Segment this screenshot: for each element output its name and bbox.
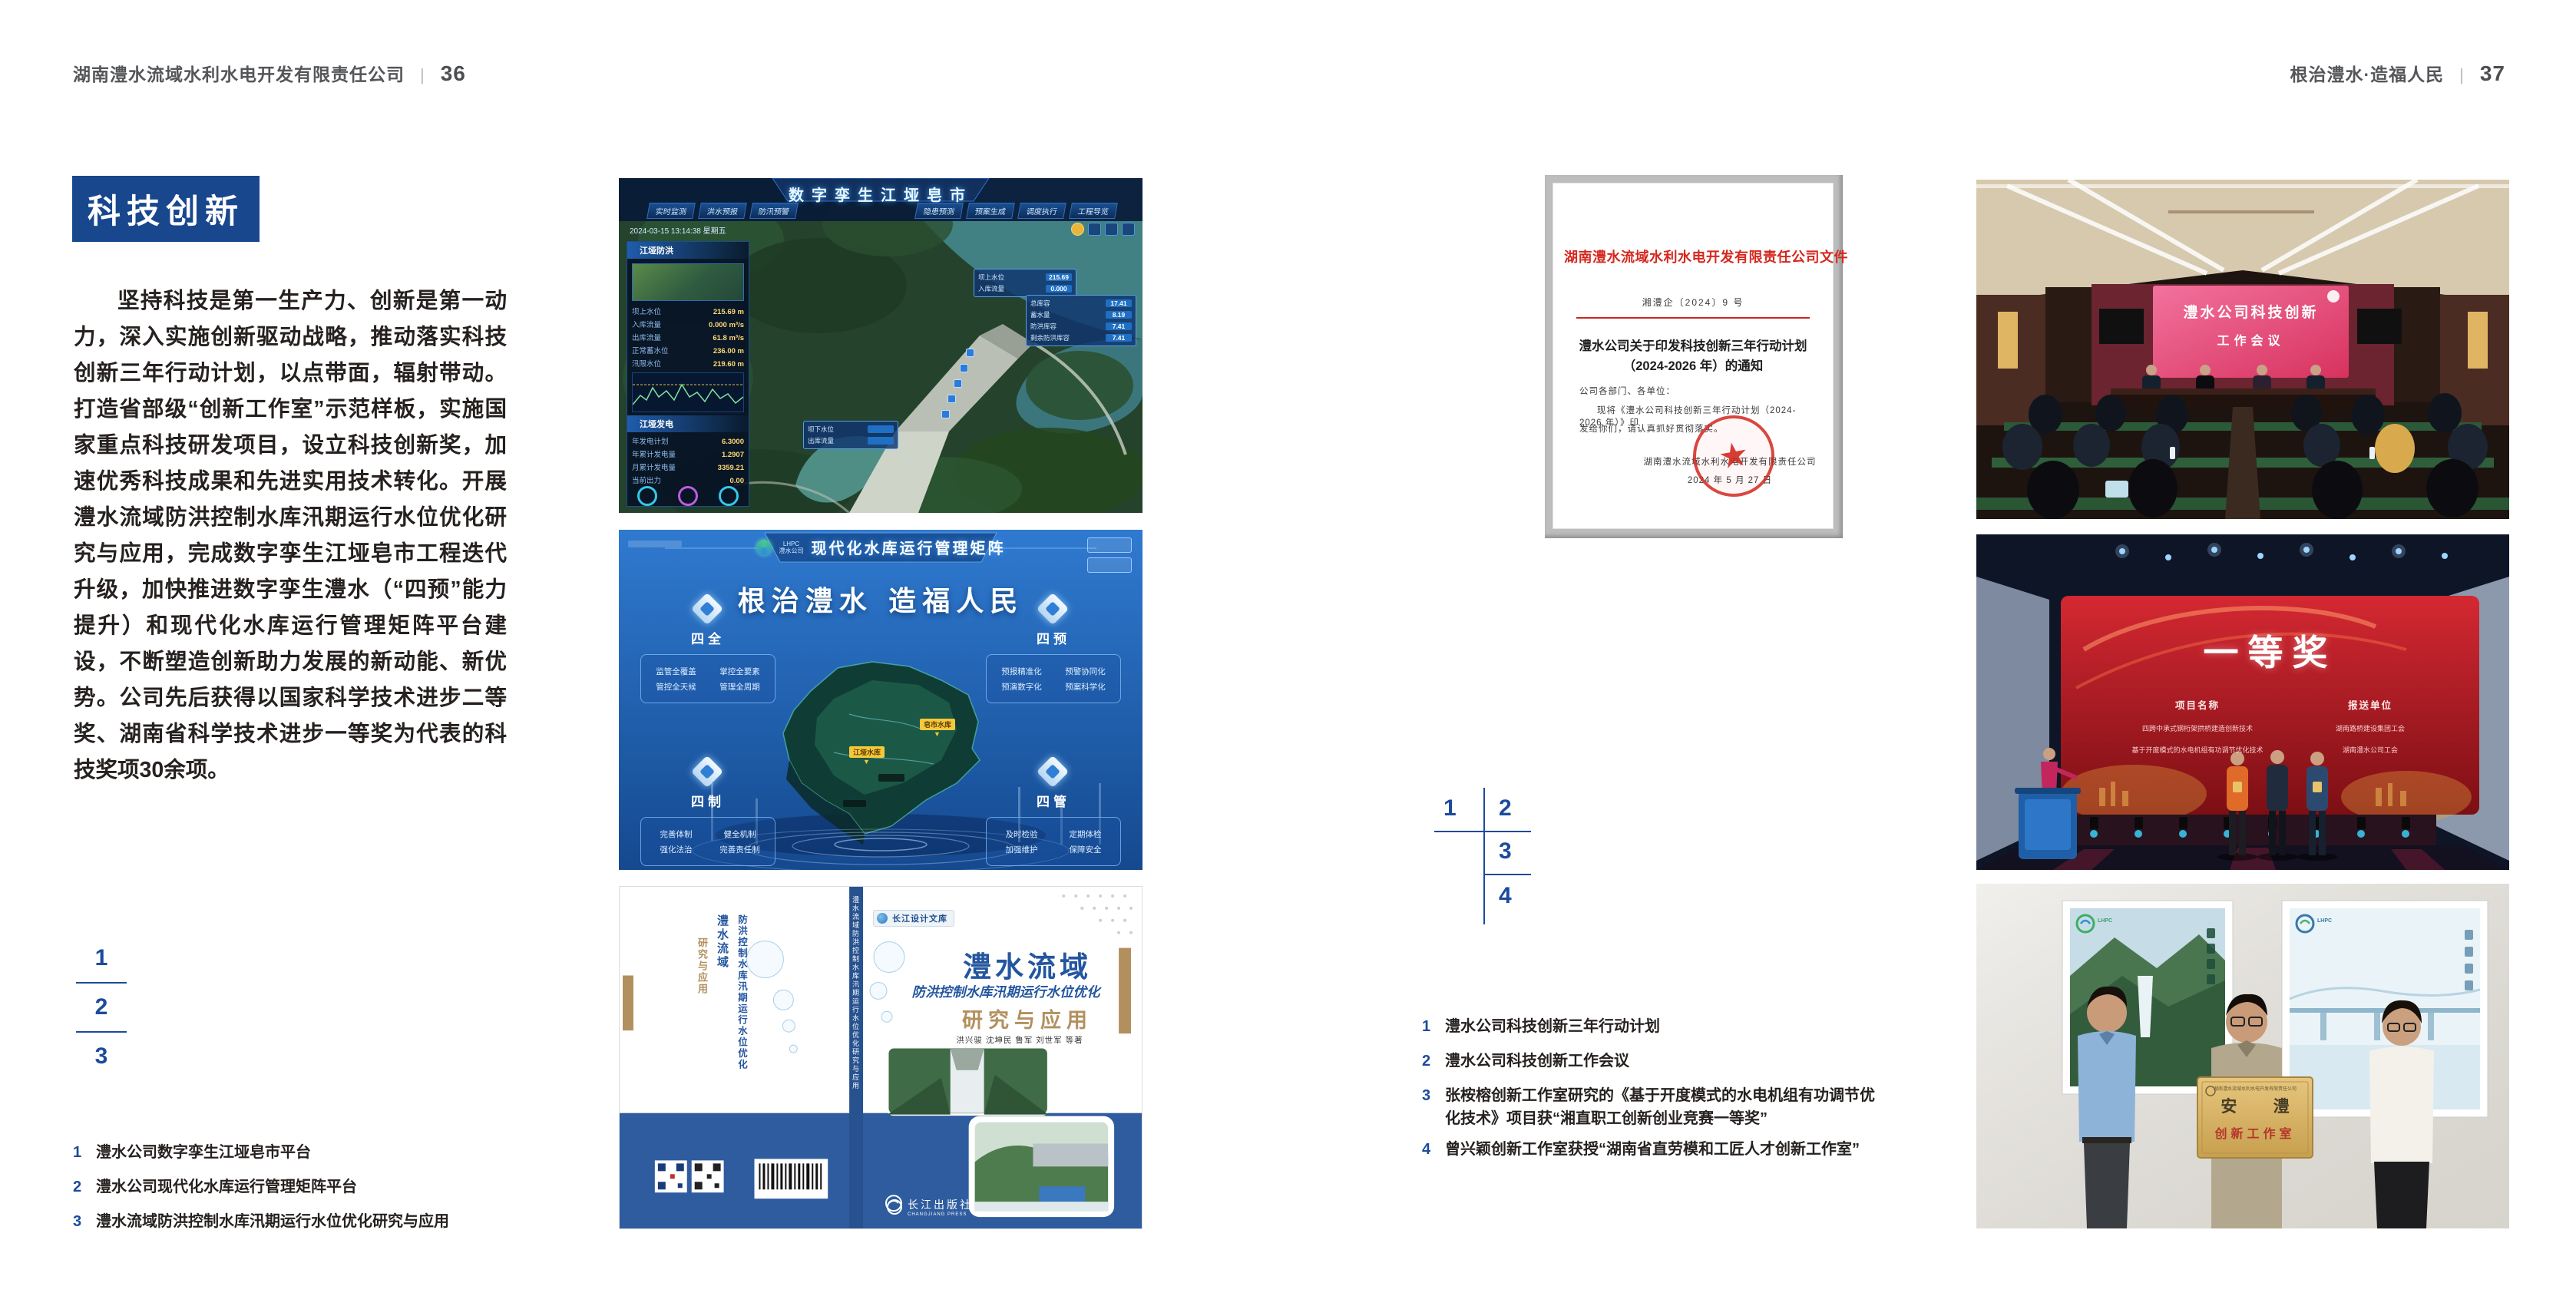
caption-number: 1 — [1422, 1015, 1434, 1038]
tab-plan-generation[interactable]: 预案生成 — [966, 203, 1015, 219]
dashboard-left-panel: 江垭防洪 坝上水位215.69 m 入库流量0.000 m³/s 出库流量61.… — [627, 241, 749, 507]
caption-row: 2 澧水公司现代化水库运行管理矩阵平台 — [73, 1175, 357, 1199]
caption-row: 1 澧水公司数字孪生江垭皂市平台 — [73, 1141, 311, 1164]
award-screen-title: 一等奖 — [2061, 625, 2479, 676]
figure-index-right: 1 2 3 4 — [1428, 785, 1536, 927]
figure-index-left: 1 2 3 — [76, 941, 127, 1073]
award-project: 基于开度模式的水电机组有功调节优化技术 — [2105, 745, 2290, 755]
poster-logo-text: LHPC — [2098, 918, 2112, 924]
panel-sizhi: 完善体制 健全机制 强化法治 完善责任制 — [640, 817, 775, 866]
back-title-line: 研究与应用 — [695, 937, 709, 1077]
panel-name: 四预 — [986, 628, 1121, 647]
gate-marker-icon[interactable] — [960, 364, 968, 372]
stat-label: 坝上水位 — [632, 306, 661, 316]
tab-hazard-prediction[interactable]: 隐患预测 — [914, 203, 964, 219]
caption-row: 3 澧水流域防洪控制水库汛期运行水位优化研究与应用 — [73, 1210, 449, 1233]
locate-icon[interactable] — [1105, 223, 1118, 236]
changjiang-design-logo-icon — [877, 913, 888, 924]
tooltip-value: 0.000 — [1046, 285, 1072, 293]
caption-row: 3 张桉榕创新工作室研究的《基于开度模式的水电机组有功调节优化技术》项目获“湘直… — [1422, 1084, 1875, 1130]
tooltip-downstream: 坝下水位 出库流量 — [803, 421, 898, 449]
document-red-rule — [1576, 317, 1810, 319]
panel-item: 强化法治 — [646, 844, 706, 855]
document-page: 湖南澧水流域水利水电开发有限责任公司文件 湘澧企〔2024〕9 号 澧水公司关于… — [1553, 183, 1834, 529]
panel-name: 四管 — [986, 791, 1121, 810]
panel-power-title: 江垭发电 — [627, 415, 749, 432]
group-photo-illustration — [1976, 884, 2509, 1228]
generator-gauges — [627, 486, 749, 506]
info-label: 蓄水量 — [1030, 310, 1050, 319]
book-subtitle: 防洪控制水库汛期运行水位优化 — [878, 982, 1134, 1001]
document-title: 澧水公司关于印发科技创新三年行动计划 — [1553, 336, 1833, 354]
tab-realtime-monitoring[interactable]: 实时监测 — [646, 203, 696, 219]
back-cover-title: 防洪控制水库汛期运行水位优化 澧水流域 研究与应用 — [695, 914, 749, 1077]
award-column-header: 报送单位 — [2305, 697, 2435, 712]
page-number-left: 36 — [441, 61, 466, 86]
stat-label: 正常蓄水位 — [632, 345, 669, 355]
company-name: 湖南澧水流域水利水电开发有限责任公司 — [73, 60, 405, 86]
index-divider — [76, 982, 127, 984]
logo-name: 澧水公司 — [779, 547, 804, 554]
lhpc-logo-text: LHPC 澧水公司 — [779, 541, 804, 554]
brochure-spread: 湖南澧水流域水利水电开发有限责任公司 | 36 根治澧水·造福人民 | 37 科… — [0, 0, 2576, 1306]
caption-number: 1 — [73, 1141, 85, 1164]
tooltip-label: 出库流量 — [808, 436, 834, 445]
panel-item: 预警协同化 — [1055, 666, 1116, 677]
info-value: 7.41 — [1106, 334, 1132, 342]
tab-flood-warning[interactable]: 防汛预警 — [749, 203, 799, 219]
slogan: 根治澧水·造福人民 — [2290, 60, 2444, 86]
figure-index-number: 1 — [1443, 795, 1457, 822]
plaque-header: 湖南澧水流域水利水电开发有限责任公司 — [2204, 1085, 2306, 1092]
right-page-header: 根治澧水·造福人民 | 37 — [2290, 60, 2505, 86]
panel-item: 及时检验 — [991, 828, 1052, 840]
document-title: （2024-2026 年）的通知 — [1553, 355, 1833, 374]
figure-award-photo: 一等奖 项目名称 报送单位 四跨中承式钢桁架拱桥建造创新技术 湖南路桥建设集团工… — [1976, 534, 2509, 870]
station-marker — [843, 800, 866, 807]
figure-index-number: 4 — [1499, 883, 1512, 909]
stat-row: 年累计发电量1.2907 — [627, 447, 749, 460]
index-divider — [1434, 831, 1531, 832]
caption-number: 2 — [73, 1175, 85, 1199]
info-label: 总库容 — [1030, 299, 1050, 308]
dashboard-title: 数字孪生江垭皂市 — [619, 183, 1143, 205]
book-subtitle-2: 研究与应用 — [927, 1003, 1128, 1033]
panel-item: 管理全周期 — [709, 681, 770, 693]
document-header: 湖南澧水流域水利水电开发有限责任公司文件 — [1564, 246, 1822, 266]
award-org: 湖南澧水公司工会 — [2305, 745, 2435, 755]
stat-value: 6.3000 — [722, 438, 744, 446]
panel-item: 健全机制 — [709, 828, 770, 840]
stat-value: 0.000 m³/s — [709, 321, 744, 329]
award-column-header: 项目名称 — [2105, 697, 2290, 712]
stat-value: 215.69 m — [713, 308, 744, 316]
dashboard-tabs-right: 隐患预测 预案生成 调度执行 工程导览 — [916, 203, 1116, 219]
panel-item: 预报精准化 — [991, 666, 1052, 677]
layers-icon[interactable] — [1088, 223, 1101, 236]
book-spine-title: 澧水流域防洪控制水库汛期运行水位优化研究与应用 — [851, 896, 861, 1134]
panel-item: 定期体检 — [1055, 828, 1116, 840]
tooltip-label: 坝下水位 — [808, 425, 834, 434]
dashboard-timestamp: 2024-03-15 13:14:38 星期五 — [630, 224, 726, 236]
tab-flood-forecast[interactable]: 洪水预报 — [698, 203, 747, 219]
book-title: 澧水流域 — [927, 944, 1128, 985]
tooltip-value: 215.69 — [1046, 273, 1072, 281]
caption-text: 澧水公司科技创新工作会议 — [1445, 1050, 1629, 1073]
book-authors: 洪兴骏 沈坤民 鲁军 刘世军 等著 — [911, 1034, 1128, 1046]
caption-row: 2 澧水公司科技创新工作会议 — [1422, 1050, 1629, 1073]
dashboard-icon-cluster — [1071, 223, 1135, 236]
stat-value: 219.60 m — [713, 360, 744, 369]
stat-label: 月累计发电量 — [632, 461, 676, 472]
caption-row: 4 曾兴颖创新工作室获授“湖南省直劳模和工匠人才创新工作室” — [1422, 1138, 1860, 1161]
meeting-screen-line1: 澧水公司科技创新 — [2153, 301, 2349, 322]
star-icon: ★ — [1716, 437, 1751, 475]
station-marker — [878, 774, 904, 782]
figure-index-number: 3 — [76, 1040, 127, 1073]
dashboard-tabs-left: 实时监测 洪水预报 防汛预警 — [648, 203, 797, 219]
meeting-screen-line2: 工作会议 — [2153, 330, 2349, 349]
section-title-badge: 科技创新 — [72, 176, 260, 242]
figure-index-number: 1 — [76, 941, 127, 975]
caption-text: 澧水公司现代化水库运行管理矩阵平台 — [96, 1175, 357, 1199]
stat-label: 年累计发电量 — [632, 448, 676, 459]
page-number-right: 37 — [2480, 61, 2505, 86]
meeting-room-illustration — [1976, 180, 2509, 519]
caption-row: 1 澧水公司科技创新三年行动计划 — [1422, 1015, 1660, 1038]
caption-number: 2 — [1422, 1050, 1434, 1073]
info-label: 剩余防洪库容 — [1030, 333, 1070, 342]
panel-siyu: 预报精准化 预警协同化 预演数字化 预案科学化 — [986, 654, 1121, 703]
award-screen-table: 项目名称 报送单位 四跨中承式钢桁架拱桥建造创新技术 湖南路桥建设集团工会 基于… — [2105, 697, 2435, 755]
caption-text: 张桉榕创新工作室研究的《基于开度模式的水电机组有功调节优化技术》项目获“湘直职工… — [1445, 1084, 1875, 1130]
caption-text: 澧水公司数字孪生江垭皂市平台 — [96, 1141, 311, 1164]
caption-text: 澧水流域防洪控制水库汛期运行水位优化研究与应用 — [96, 1210, 449, 1233]
back-title-line: 澧水流域 — [714, 914, 730, 1077]
fullscreen-button[interactable] — [1087, 537, 1132, 553]
publisher-block: 长江出版社 CHANGJIANG PRESS — [887, 1197, 973, 1217]
stat-value: 236.00 m — [713, 347, 744, 355]
header-divider: | — [420, 65, 425, 85]
stat-value: 61.8 m³/s — [713, 334, 744, 342]
matrix-title: 现代化水库运行管理矩阵 — [812, 536, 1006, 558]
document-salutation: 公司各部门、各单位： — [1579, 385, 1675, 397]
panel-name: 四全 — [640, 628, 775, 647]
changjiang-press-logo-icon — [887, 1199, 902, 1215]
caption-text: 曾兴颖创新工作室获授“湖南省直劳模和工匠人才创新工作室” — [1445, 1138, 1860, 1161]
caption-number: 3 — [73, 1210, 85, 1233]
panel-item: 预演数字化 — [991, 681, 1052, 693]
plaque-title: 安 澧 — [2204, 1094, 2306, 1117]
stat-row: 当前出力0.00 — [627, 473, 749, 486]
lhpc-logo-icon — [756, 540, 772, 555]
caption-number: 4 — [1422, 1138, 1434, 1161]
tooltip-value — [868, 437, 894, 445]
caption-text: 澧水公司科技创新三年行动计划 — [1445, 1015, 1660, 1038]
figure-index-number: 2 — [76, 990, 127, 1024]
gauge-icon — [637, 486, 657, 506]
left-page-header: 湖南澧水流域水利水电开发有限责任公司 | 36 — [73, 60, 466, 86]
caption-number: 3 — [1422, 1084, 1434, 1130]
figure-index-number: 3 — [1499, 838, 1512, 865]
reservoir-marker[interactable]: 皂市水库 — [920, 719, 955, 730]
tooltip-value — [868, 425, 894, 433]
stat-label: 汛限水位 — [632, 358, 661, 369]
dam-thumbnail — [632, 263, 744, 301]
figure-digital-twin-dashboard: 数字孪生江垭皂市 实时监测 洪水预报 防汛预警 隐患预测 预案生成 调度执行 工… — [619, 178, 1143, 513]
stat-row: 坝上水位215.69 m — [627, 304, 749, 317]
info-card: 总库容17.41 蓄水量8.19 防洪库容7.41 剩余防洪库容7.41 — [1026, 295, 1136, 346]
panel-item: 保障安全 — [1055, 844, 1116, 855]
panel-item: 完善责任制 — [709, 844, 770, 855]
panel-flood-title: 江垭防洪 — [627, 242, 749, 259]
info-label: 防洪库容 — [1030, 322, 1057, 331]
stat-value: 3359.21 — [718, 464, 744, 472]
gauge-icon — [678, 486, 698, 506]
stat-value: 1.2907 — [722, 451, 744, 459]
stat-row: 出库流量61.8 m³/s — [627, 330, 749, 343]
barcode — [754, 1159, 828, 1199]
reservoir-marker[interactable]: 江垭水库 — [849, 746, 885, 758]
figure-meeting-photo: 澧水公司科技创新 工作会议 — [1976, 180, 2509, 519]
marker-pin-icon: ▼ — [863, 759, 870, 765]
logo-abbr: LHPC — [783, 541, 799, 547]
back-title-line: 防洪控制水库汛期运行水位优化 — [735, 914, 749, 1077]
stat-value: 0.00 — [730, 477, 745, 485]
index-divider — [1483, 788, 1485, 924]
panel-siquan: 监管全覆盖 掌控全要素 管控全天候 管理全周期 — [640, 654, 775, 703]
gate-marker-icon[interactable] — [966, 349, 974, 357]
stat-row: 年发电计划6.3000 — [627, 434, 749, 447]
band-photo — [969, 1116, 1114, 1217]
figure-index-number: 2 — [1499, 795, 1512, 822]
tab-project-tour[interactable]: 工程导览 — [1069, 203, 1118, 219]
panel-item: 加强维护 — [991, 844, 1052, 855]
figure-matrix-platform: LHPC 澧水公司 现代化水库运行管理矩阵 根治澧水 造福人民 四全 监管全覆盖… — [619, 530, 1143, 870]
panel-item: 掌控全要素 — [709, 666, 770, 677]
series-badge: 长江设计文库 — [873, 910, 954, 927]
stat-label: 当前出力 — [632, 474, 661, 485]
poster-logo-text: LHPC — [2317, 918, 2332, 924]
stat-row: 入库流量0.000 m³/s — [627, 317, 749, 330]
intro-paragraph: 坚持科技是第一生产力、创新是第一动力，深入实施创新驱动战略，推动落实科技创新三年… — [74, 283, 507, 789]
stat-label: 出库流量 — [632, 332, 661, 342]
panel-item: 完善体制 — [646, 828, 706, 840]
panel-item: 监管全覆盖 — [646, 666, 706, 677]
figure-group-photo: LHPC LHPC 湖南澧水流域水利水电开发有限责任公司 安 澧 创新工作室 — [1976, 884, 2509, 1228]
stat-label: 年发电计划 — [632, 435, 669, 446]
panel-item: 管控全天候 — [646, 681, 706, 693]
index-divider — [1483, 874, 1531, 875]
gauge-icon — [719, 486, 739, 506]
document-number: 湘澧企〔2024〕9 号 — [1553, 296, 1833, 309]
stat-label: 入库流量 — [632, 319, 661, 329]
stat-row: 月累计发电量3359.21 — [627, 460, 749, 473]
gate-marker-icon[interactable] — [941, 410, 950, 418]
header-divider: | — [2459, 65, 2465, 85]
tooltip-upstream: 坝上水位215.69 入库流量0.000 — [974, 269, 1076, 297]
settings-icon[interactable] — [1122, 223, 1135, 236]
publisher-name: 长江出版社 — [908, 1199, 973, 1212]
tab-dispatch-execution[interactable]: 调度执行 — [1017, 203, 1066, 219]
marker-pin-icon: ▼ — [934, 731, 941, 738]
info-value: 7.41 — [1106, 322, 1132, 330]
user-icon[interactable] — [1071, 223, 1084, 236]
tooltip-label: 坝上水位 — [978, 273, 1004, 282]
gate-marker-icon[interactable] — [954, 379, 962, 388]
tooltip-label: 入库流量 — [978, 284, 1004, 293]
water-level-chart — [632, 372, 744, 412]
panel-siguan: 及时检验 定期体检 加强维护 保障安全 — [986, 817, 1121, 866]
series-badge-text: 长江设计文库 — [892, 912, 947, 924]
award-project: 四跨中承式钢桁架拱桥建造创新技术 — [2105, 723, 2290, 733]
front-photo-top — [888, 1047, 1048, 1115]
gate-marker-icon[interactable] — [947, 395, 956, 403]
figure-book-cover: 防洪控制水库汛期运行水位优化 澧水流域 研究与应用 澧水流域防洪控制水库汛期运行… — [619, 886, 1143, 1229]
menu-button[interactable] — [1087, 557, 1132, 573]
panel-name: 四制 — [640, 791, 775, 810]
figure-official-document: 湖南澧水流域水利水电开发有限责任公司文件 湘澧企〔2024〕9 号 澧水公司关于… — [1545, 175, 1843, 538]
index-divider — [76, 1031, 127, 1033]
panel-item: 预案科学化 — [1055, 681, 1116, 693]
info-value: 8.19 — [1106, 311, 1132, 319]
info-value: 17.41 — [1106, 299, 1132, 307]
publisher-name-en: CHANGJIANG PRESS — [908, 1212, 973, 1217]
stat-row: 汛限水位219.60 m — [627, 356, 749, 369]
matrix-header: LHPC 澧水公司 现代化水库运行管理矩阵 — [619, 536, 1143, 558]
stat-row: 正常蓄水位236.00 m — [627, 343, 749, 356]
award-org: 湖南路桥建设集团工会 — [2305, 723, 2435, 733]
plaque-subtitle: 创新工作室 — [2204, 1123, 2306, 1142]
